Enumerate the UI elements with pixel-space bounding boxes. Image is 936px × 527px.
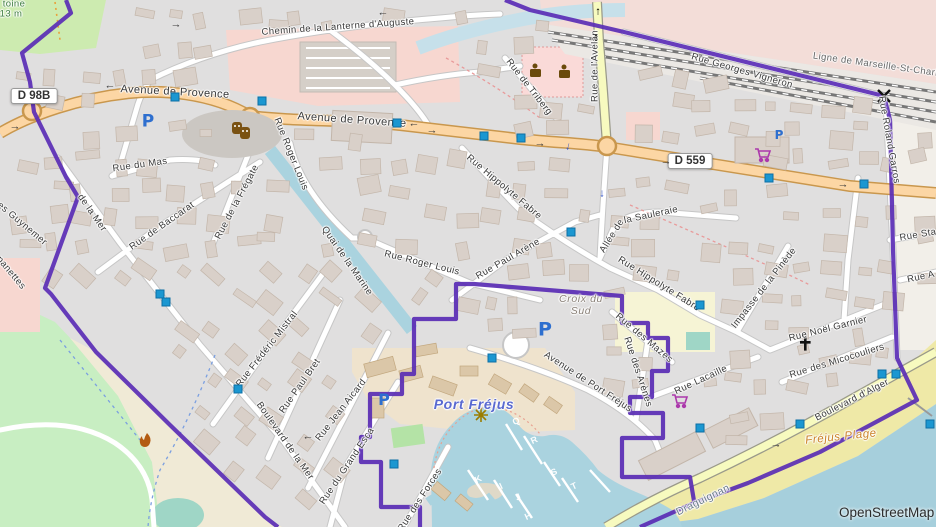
building <box>783 212 798 221</box>
building <box>178 42 193 59</box>
building <box>360 159 381 175</box>
building <box>264 214 283 233</box>
building <box>726 435 747 445</box>
road-shield-d98b: D 98B <box>11 88 58 104</box>
building <box>608 188 625 197</box>
building <box>455 10 468 24</box>
building <box>357 174 381 195</box>
building <box>477 40 488 54</box>
building <box>790 103 812 114</box>
building <box>766 183 787 197</box>
building <box>200 182 215 199</box>
oneway-arrow-icon: → <box>171 20 182 31</box>
oneway-arrow-icon: ↑ <box>593 33 599 44</box>
bus-stop-icon <box>171 93 180 102</box>
bus-stop-icon <box>892 370 901 379</box>
parking-icon: P <box>538 321 552 340</box>
oneway-arrow-icon: → <box>535 139 546 150</box>
place-label-elevation: 13 m <box>0 9 22 20</box>
building <box>829 130 854 150</box>
oneway-arrow-icon: ← <box>105 81 116 92</box>
sports-pitch <box>686 332 710 350</box>
building <box>724 190 736 206</box>
bus-stop-icon <box>696 301 705 310</box>
building <box>765 321 778 330</box>
building <box>918 132 933 148</box>
building <box>485 297 496 310</box>
building <box>635 125 652 143</box>
building <box>822 105 846 118</box>
building <box>855 216 868 227</box>
building <box>820 260 841 275</box>
building <box>75 239 89 254</box>
building <box>142 178 161 193</box>
bus-stop-icon <box>567 228 576 237</box>
building <box>729 242 748 255</box>
building <box>662 131 680 144</box>
building <box>488 318 503 331</box>
building <box>852 96 872 114</box>
building <box>797 344 809 355</box>
building <box>514 37 534 55</box>
map-base-layer <box>0 0 936 527</box>
bus-stop-icon <box>480 132 489 141</box>
building <box>173 67 198 87</box>
building <box>391 159 408 175</box>
building <box>50 204 69 223</box>
building <box>754 380 766 395</box>
building <box>116 126 138 142</box>
place-label-port-frejus: Port Fréjus <box>434 396 515 412</box>
bus-stop-icon <box>860 180 869 189</box>
parking-icon: P <box>142 114 154 131</box>
building <box>507 264 529 281</box>
building <box>112 188 129 201</box>
building <box>636 177 650 188</box>
building <box>766 102 776 111</box>
building <box>348 133 362 151</box>
bus-stop-icon <box>162 298 171 307</box>
building <box>546 120 568 135</box>
building <box>416 154 438 174</box>
oneway-arrow-icon: → <box>838 180 849 191</box>
map-canvas[interactable]: Chemin de la Lanterne d'Auguste Avenue d… <box>0 0 936 527</box>
bus-stop-icon <box>878 370 887 379</box>
route-arrow-icon: ↓ <box>599 189 605 200</box>
bus-stop-icon <box>234 385 243 394</box>
bus-stop-icon <box>258 97 267 106</box>
building <box>83 132 100 150</box>
building <box>267 180 290 192</box>
building <box>536 20 549 31</box>
parking-icon: P <box>378 392 390 408</box>
bus-stop-icon <box>390 460 399 469</box>
building <box>508 297 518 314</box>
road-shield-d559: D 559 <box>668 153 713 169</box>
attribution-link[interactable]: OpenStreetMap <box>839 505 934 520</box>
building <box>457 213 479 228</box>
parking-icon: P <box>775 129 784 141</box>
building <box>512 328 536 338</box>
building <box>793 148 803 163</box>
oneway-arrow-icon: ↑ <box>595 7 601 18</box>
pool <box>463 458 471 464</box>
building <box>823 209 840 218</box>
building <box>81 93 94 107</box>
oneway-arrow-icon: ← <box>303 432 314 443</box>
building <box>319 157 342 171</box>
bus-stop-icon <box>488 354 497 363</box>
building <box>545 189 568 198</box>
building <box>142 69 156 84</box>
building <box>853 121 867 130</box>
building <box>733 268 753 285</box>
oneway-arrow-icon: ← <box>378 8 389 19</box>
bus-stop-icon <box>393 119 402 128</box>
oneway-arrow-icon: → <box>661 157 672 168</box>
building <box>667 270 679 281</box>
bus-stop-icon <box>517 134 526 143</box>
theatre-grounds <box>182 110 282 158</box>
building <box>170 9 183 18</box>
building <box>480 208 501 225</box>
bus-stop-icon <box>796 420 805 429</box>
building <box>860 152 879 165</box>
place-label-croix-du-sud: Croix du Sud <box>552 293 610 317</box>
building <box>785 122 800 136</box>
building <box>760 413 784 431</box>
building <box>205 240 218 258</box>
building <box>542 259 564 275</box>
building <box>579 209 590 222</box>
building <box>518 161 535 170</box>
oneway-arrow-icon: → <box>427 126 438 137</box>
bus-stop-icon <box>765 174 774 183</box>
building <box>83 72 101 84</box>
building <box>701 243 722 263</box>
building <box>735 100 756 111</box>
building <box>460 366 478 376</box>
oneway-arrow-icon: → <box>10 122 21 133</box>
building <box>166 185 185 202</box>
bus-stop-icon <box>926 420 935 429</box>
bus-stop-icon <box>696 424 705 433</box>
building <box>169 120 187 132</box>
building <box>826 373 838 387</box>
building <box>239 8 263 25</box>
building <box>792 296 802 307</box>
building <box>43 69 55 86</box>
building <box>257 232 275 241</box>
building <box>200 129 212 136</box>
building <box>549 157 570 172</box>
oneway-arrow-icon: ← <box>409 119 420 130</box>
building <box>823 234 847 253</box>
building <box>569 264 588 281</box>
building <box>859 267 872 276</box>
building <box>631 239 654 256</box>
oneway-arrow-icon: → <box>771 440 782 451</box>
building <box>692 100 710 112</box>
building <box>603 324 618 340</box>
building <box>730 350 751 369</box>
building <box>294 129 314 140</box>
building <box>607 347 621 355</box>
